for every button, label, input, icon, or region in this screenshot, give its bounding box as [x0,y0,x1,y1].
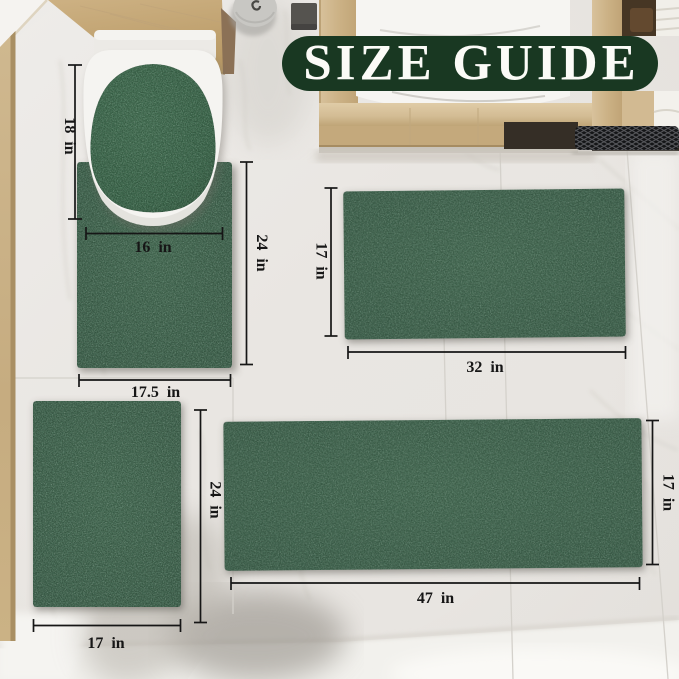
svg-text:17 in: 17 in [660,474,677,511]
svg-text:SIZE GUIDE: SIZE GUIDE [303,36,639,92]
svg-text:17.5 in: 17.5 in [131,384,180,401]
svg-text:18 in: 18 in [61,117,78,154]
svg-text:24 in: 24 in [253,234,270,271]
svg-text:17 in: 17 in [313,242,330,279]
svg-text:32 in: 32 in [466,359,503,376]
svg-text:16 in: 16 in [134,239,171,256]
svg-text:17 in: 17 in [87,635,124,652]
svg-text:24 in: 24 in [207,481,224,518]
svg-text:47 in: 47 in [417,590,454,607]
